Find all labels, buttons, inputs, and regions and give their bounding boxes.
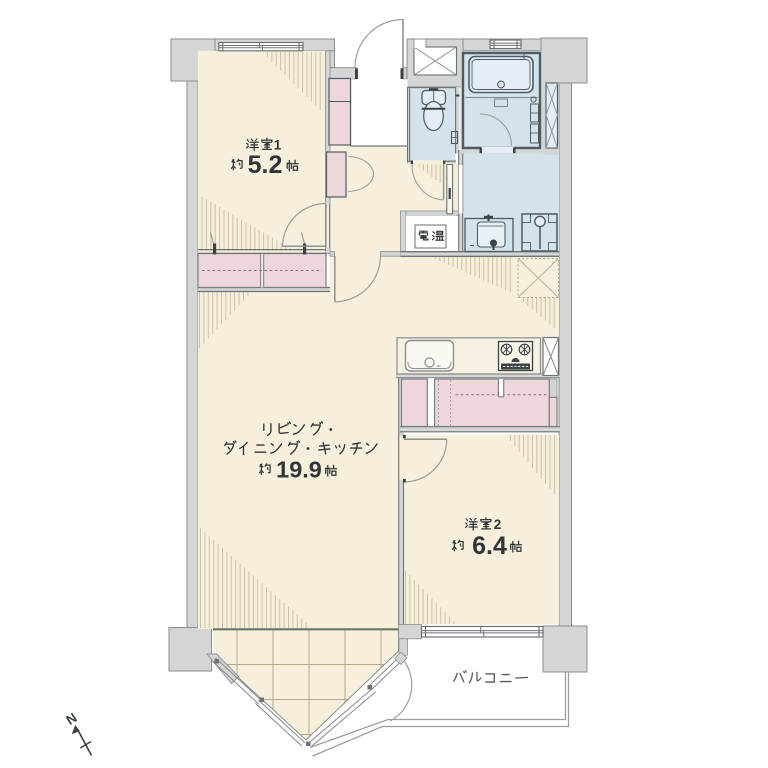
svg-text:19.9: 19.9 [276,457,322,483]
svg-text:2: 2 [494,517,502,532]
svg-text:5.2: 5.2 [248,151,283,179]
svg-text:6.4: 6.4 [472,532,507,560]
